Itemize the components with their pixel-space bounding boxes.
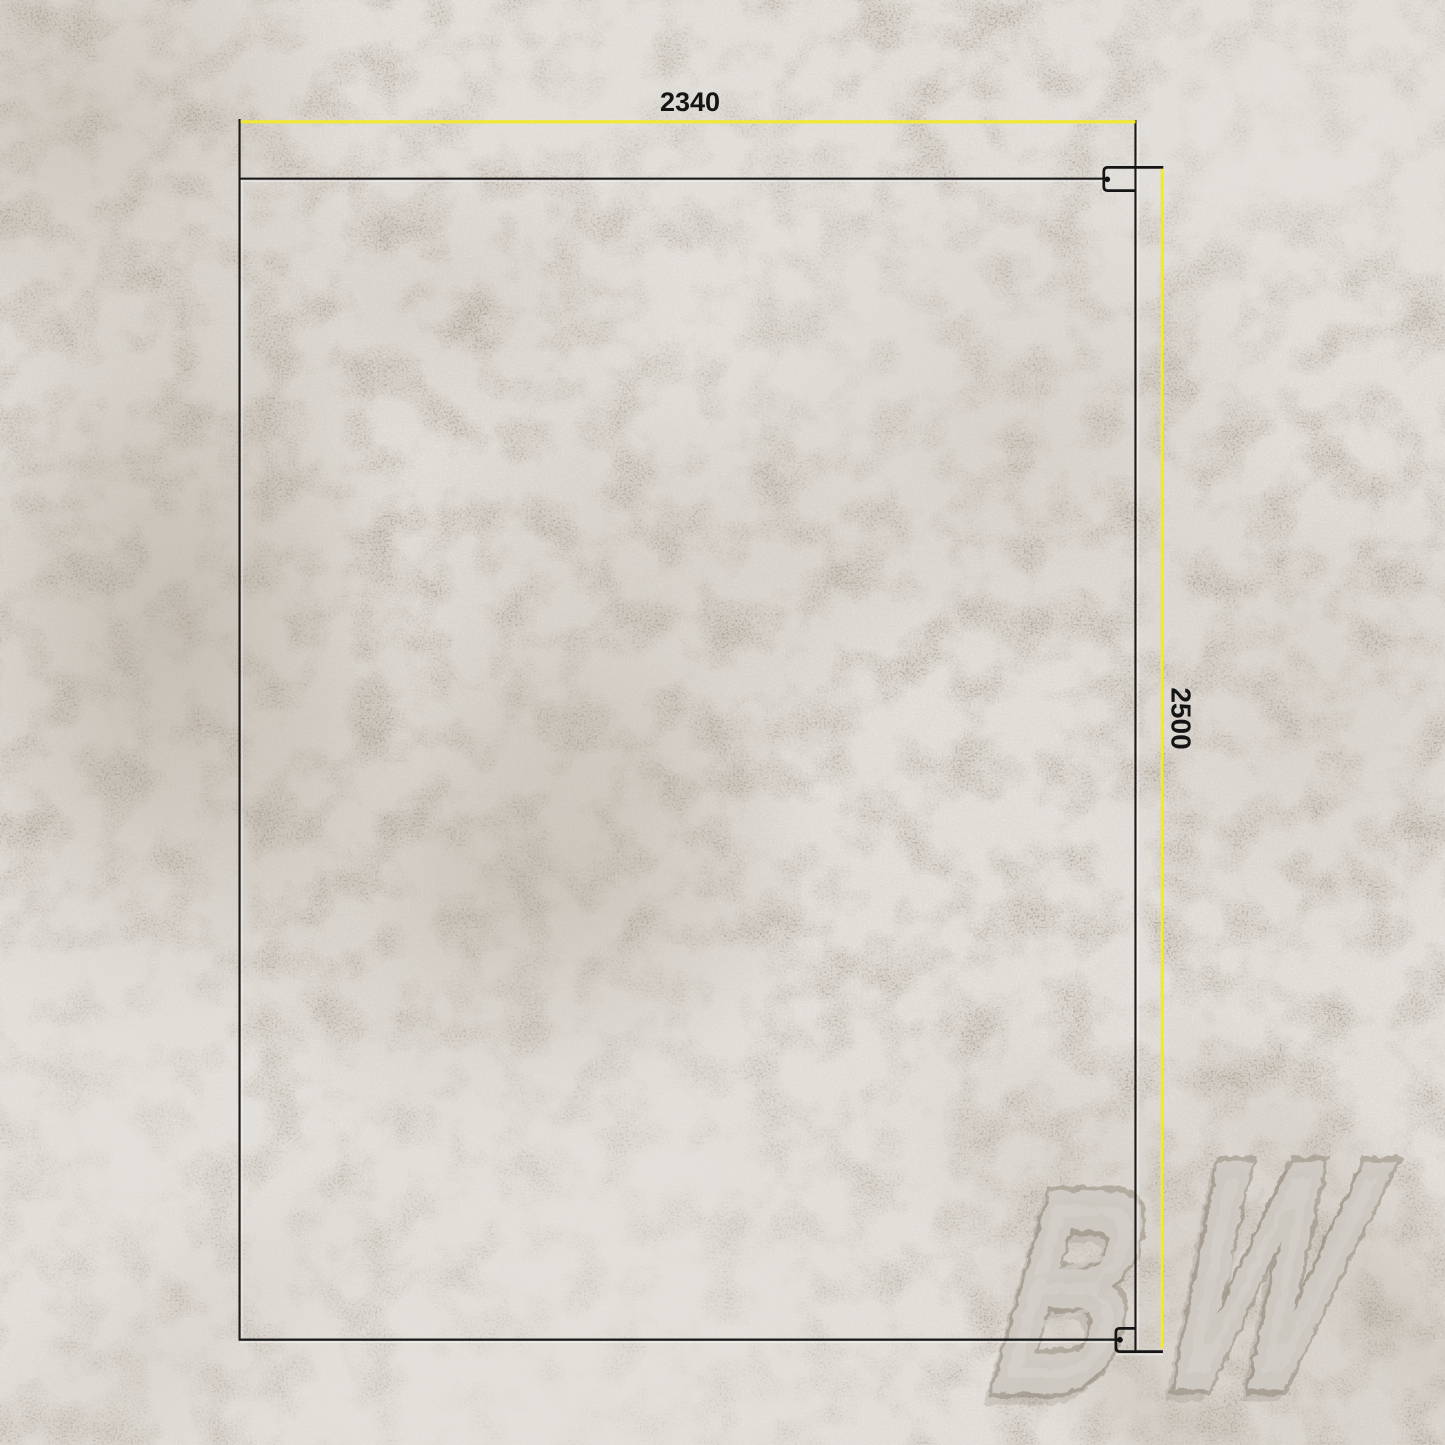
svg-text:2500: 2500 [1166, 687, 1197, 749]
svg-text:2340: 2340 [660, 87, 720, 117]
